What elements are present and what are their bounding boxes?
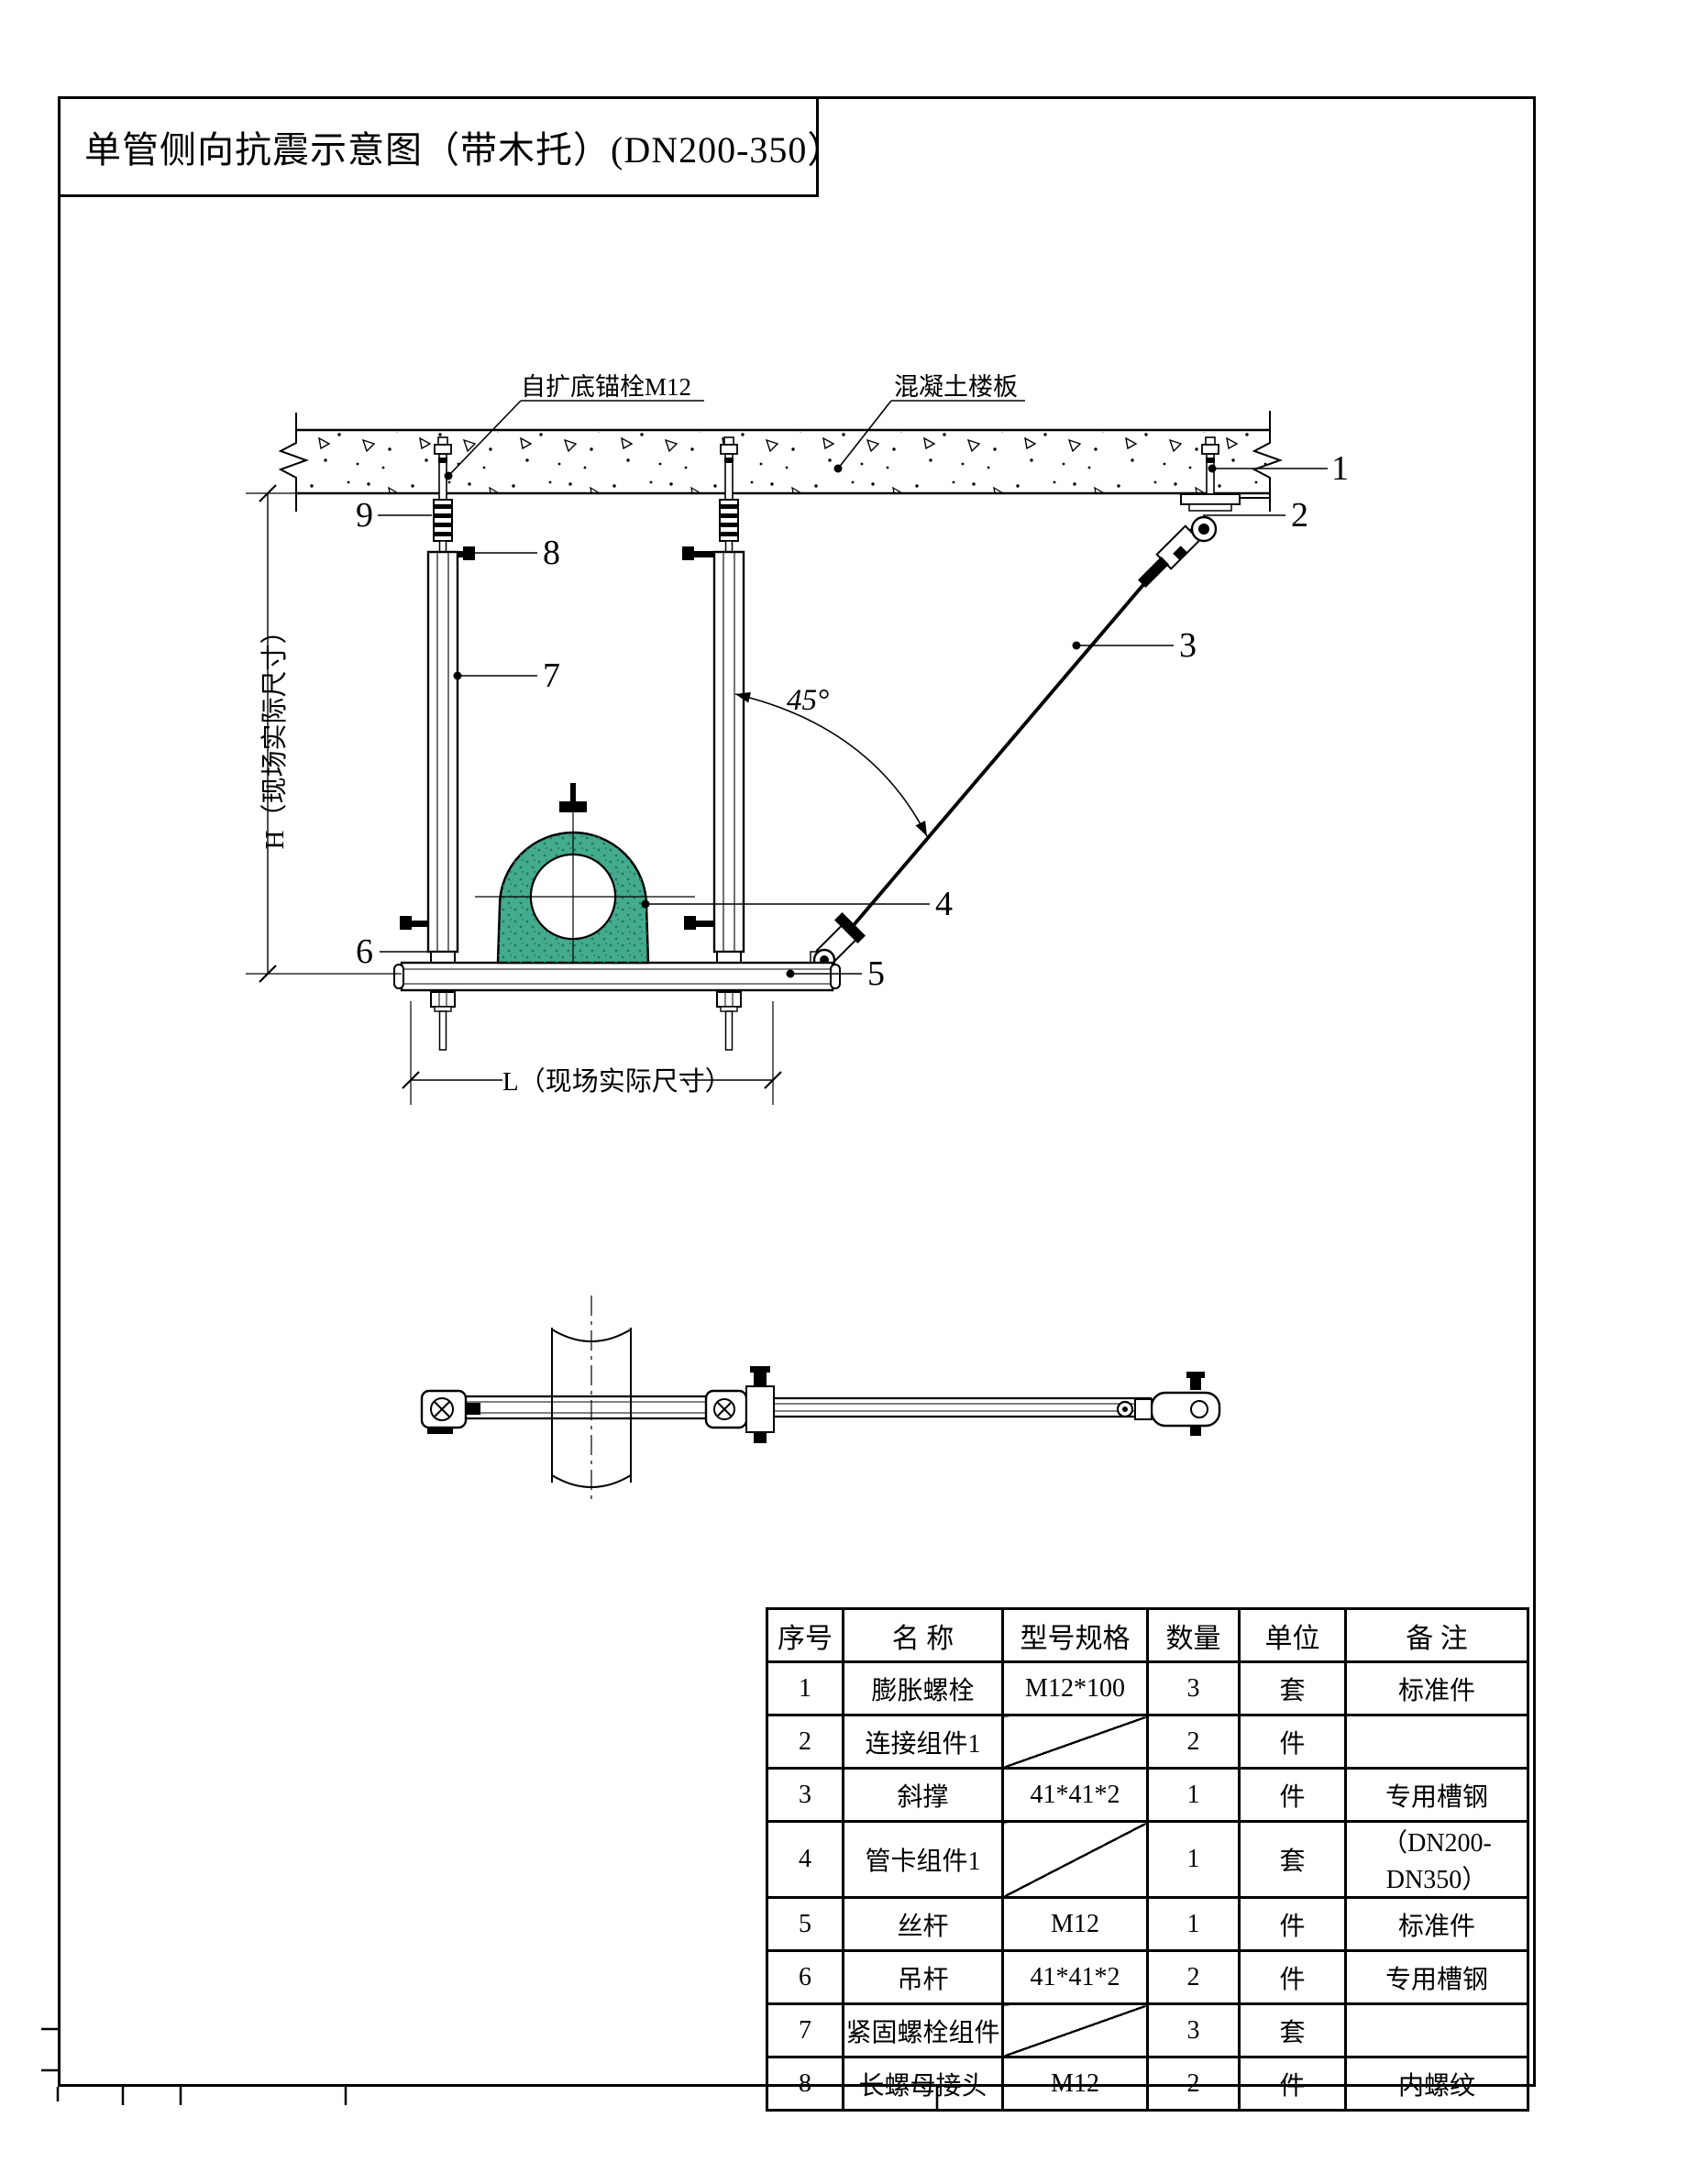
angle-arc — [735, 692, 927, 836]
table-row: 6 吊杆 41*41*2 2 件 专用槽钢 — [767, 1951, 1528, 2004]
callout-8: 8 — [543, 535, 560, 570]
cell-index: 4 — [767, 1822, 844, 1898]
cell-spec: 41*41*2 — [1003, 1951, 1148, 2004]
cell-unit: 套 — [1240, 2004, 1346, 2057]
col-header-qty: 数量 — [1148, 1609, 1240, 1662]
cell-spec-slash — [1003, 1715, 1148, 1769]
cell-unit: 件 — [1240, 2057, 1346, 2111]
cell-name: 膨胀螺栓 — [844, 1662, 1003, 1715]
parts-table-header-row: 序号 名 称 型号规格 数量 单位 备 注 — [767, 1609, 1528, 1662]
cell-unit: 件 — [1240, 1898, 1346, 1951]
col-header-remark: 备 注 — [1346, 1609, 1528, 1662]
table-row: 8 长螺母接头 M12 2 件 内螺纹 — [767, 2057, 1528, 2111]
cell-unit: 套 — [1240, 1662, 1346, 1715]
cell-spec: M12 — [1003, 1898, 1148, 1951]
hanger-rod-left — [428, 552, 458, 964]
cell-qty: 1 — [1148, 1769, 1240, 1822]
cell-name: 连接组件1 — [844, 1715, 1003, 1769]
cell-qty: 3 — [1148, 2004, 1240, 2057]
long-nut-coupler-left — [434, 500, 452, 552]
cell-remark: （DN200-DN350） — [1346, 1822, 1528, 1898]
plan-view — [422, 1296, 1219, 1504]
col-header-unit: 单位 — [1240, 1609, 1346, 1662]
pipe-clamp — [475, 783, 695, 963]
callout-3: 3 — [1179, 628, 1197, 663]
cell-unit: 件 — [1240, 1951, 1346, 2004]
cell-spec-slash — [1003, 1822, 1148, 1898]
dimension-l-text: L（现场实际尺寸） — [502, 1060, 680, 1098]
cell-index: 6 — [767, 1951, 844, 2004]
rod-stub-left — [431, 992, 455, 1050]
cell-remark: 专用槽钢 — [1346, 1951, 1528, 2004]
callout-7: 7 — [543, 658, 560, 693]
callout-2: 2 — [1291, 498, 1308, 533]
table-row: 5 丝杆 M12 1 件 标准件 — [767, 1898, 1528, 1951]
cell-remark — [1346, 1715, 1528, 1769]
table-row: 1 膨胀螺栓 M12*100 3 套 标准件 — [767, 1662, 1528, 1715]
callout-5: 5 — [867, 956, 885, 991]
callout-9: 9 — [356, 498, 373, 533]
label-anchor-bolt: 自扩底锚栓M12 — [521, 367, 691, 403]
cell-remark — [1346, 2004, 1528, 2057]
plan-end-bracket — [1152, 1393, 1219, 1426]
cell-unit: 件 — [1240, 1769, 1346, 1822]
hanger-rod-right — [714, 552, 744, 964]
callout-6: 6 — [356, 934, 373, 969]
cell-index: 8 — [767, 2057, 844, 2111]
col-header-name: 名 称 — [844, 1609, 1003, 1662]
cell-qty: 2 — [1148, 2057, 1240, 2111]
long-nut-coupler-right — [720, 500, 738, 552]
channel-plan — [458, 1396, 711, 1418]
table-row: 2 连接组件1 2 件 — [767, 1715, 1528, 1769]
drawing-sheet: 单管侧向抗震示意图（带木托）(DN200-350） 自扩底锚栓M12 混凝土楼板… — [0, 0, 1688, 2184]
callout-4: 4 — [935, 887, 953, 921]
callout-1: 1 — [1331, 451, 1349, 486]
cell-name: 丝杆 — [844, 1898, 1003, 1951]
cell-unit: 件 — [1240, 1715, 1346, 1769]
cell-spec: M12*100 — [1003, 1662, 1148, 1715]
cell-unit: 套 — [1240, 1822, 1346, 1898]
brace-top-connector — [1138, 494, 1270, 588]
cell-remark: 标准件 — [1346, 1662, 1528, 1715]
cell-qty: 1 — [1148, 1822, 1240, 1898]
rod-stub-right — [717, 992, 741, 1050]
cell-name: 斜撑 — [844, 1769, 1003, 1822]
parts-table: 序号 名 称 型号规格 数量 单位 备 注 1 膨胀螺栓 M12*100 3 套… — [766, 1607, 1529, 2112]
cell-index: 1 — [767, 1662, 844, 1715]
label-concrete-slab: 混凝土楼板 — [894, 367, 1018, 403]
cell-remark: 专用槽钢 — [1346, 1769, 1528, 1822]
concrete-slab — [281, 411, 1280, 512]
cell-qty: 2 — [1148, 1715, 1240, 1769]
cell-spec-slash — [1003, 2004, 1148, 2057]
cell-spec: M12 — [1003, 2057, 1148, 2111]
cell-remark: 标准件 — [1346, 1898, 1528, 1951]
table-row: 3 斜撑 41*41*2 1 件 专用槽钢 — [767, 1769, 1528, 1822]
cell-spec: 41*41*2 — [1003, 1769, 1148, 1822]
brace-plan — [774, 1398, 1152, 1417]
cell-name: 长螺母接头 — [844, 2057, 1003, 2111]
cell-index: 3 — [767, 1769, 844, 1822]
label-angle-45: 45° — [787, 684, 829, 718]
cell-remark: 内螺纹 — [1346, 2057, 1528, 2111]
bottom-bar — [394, 963, 840, 990]
table-row: 7 紧固螺栓组件 3 套 — [767, 2004, 1528, 2057]
title-block: 单管侧向抗震示意图（带木托）(DN200-350） — [58, 96, 819, 197]
cell-name: 紧固螺栓组件 — [844, 2004, 1003, 2057]
col-header-spec: 型号规格 — [1003, 1609, 1148, 1662]
drawing-title: 单管侧向抗震示意图（带木托）(DN200-350） — [84, 120, 844, 173]
cell-index: 7 — [767, 2004, 844, 2057]
table-row: 4 管卡组件1 1 套 （DN200-DN350） — [767, 1822, 1528, 1898]
cell-qty: 3 — [1148, 1662, 1240, 1715]
cell-qty: 1 — [1148, 1898, 1240, 1951]
cell-index: 5 — [767, 1898, 844, 1951]
col-header-index: 序号 — [767, 1609, 844, 1662]
cell-index: 2 — [767, 1715, 844, 1769]
cell-name: 吊杆 — [844, 1951, 1003, 2004]
cell-name: 管卡组件1 — [844, 1822, 1003, 1898]
dimension-h-text: H（现场实际尺寸） — [253, 495, 290, 972]
cell-qty: 2 — [1148, 1951, 1240, 2004]
